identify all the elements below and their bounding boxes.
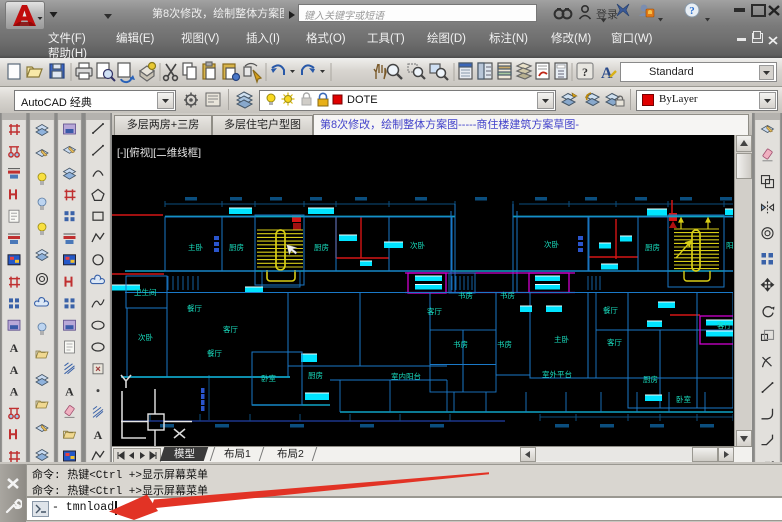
svg-text:卧室: 卧室 xyxy=(676,394,691,404)
svg-text:?: ? xyxy=(689,5,695,17)
svg-text:次卧: 次卧 xyxy=(544,239,559,249)
svg-text:A: A xyxy=(94,428,103,442)
svg-text:厨房: 厨房 xyxy=(645,242,660,252)
svg-text:A: A xyxy=(10,385,19,399)
svg-text:主卧: 主卧 xyxy=(188,242,203,252)
svg-text:次卧: 次卧 xyxy=(410,240,425,250)
svg-text:书房: 书房 xyxy=(500,290,515,300)
svg-text:主卧: 主卧 xyxy=(554,334,569,344)
svg-text:客厅: 客厅 xyxy=(607,337,622,347)
svg-text:餐厅: 餐厅 xyxy=(207,349,222,358)
svg-text:阳台: 阳台 xyxy=(726,240,733,250)
svg-text:A: A xyxy=(65,385,74,399)
svg-text:厨房: 厨房 xyxy=(314,242,329,252)
svg-text:次卧: 次卧 xyxy=(138,332,153,342)
svg-text:?: ? xyxy=(582,65,588,79)
svg-text:A: A xyxy=(10,363,19,377)
svg-text:书房: 书房 xyxy=(458,290,473,300)
svg-text:A: A xyxy=(10,341,19,355)
svg-text:室内阳台: 室内阳台 xyxy=(391,371,421,381)
svg-text:厨房: 厨房 xyxy=(229,242,244,252)
svg-text:卫生间: 卫生间 xyxy=(134,287,157,297)
svg-text:餐厅: 餐厅 xyxy=(603,306,618,315)
svg-text:室外平台: 室外平台 xyxy=(542,369,572,379)
svg-text:客厅: 客厅 xyxy=(717,320,732,330)
svg-text:厨房: 厨房 xyxy=(643,374,658,384)
svg-text:书房: 书房 xyxy=(453,339,468,349)
svg-text:厨房: 厨房 xyxy=(308,370,323,380)
svg-text:餐厅: 餐厅 xyxy=(187,304,202,313)
svg-text:客厅: 客厅 xyxy=(427,306,442,316)
svg-text:客厅: 客厅 xyxy=(223,324,238,334)
svg-text:书房: 书房 xyxy=(497,339,512,349)
svg-text:卧室: 卧室 xyxy=(261,373,276,383)
svg-text:A: A xyxy=(601,65,613,82)
